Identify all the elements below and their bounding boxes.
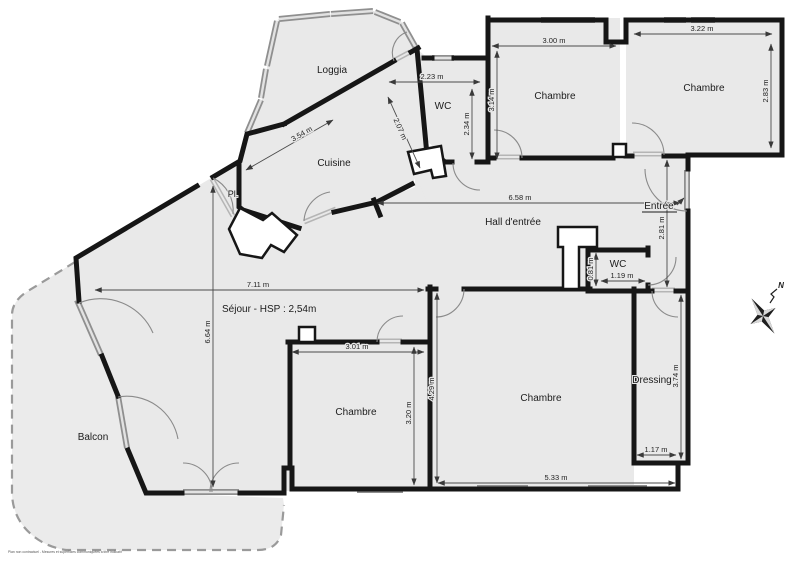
room-label-wc-hall: WC [610, 259, 627, 270]
floor-plan-page: 2.23 m 2.34 m 3.00 m 3.14 m 3.22 m 2.83 … [0, 0, 800, 566]
dim-chambre-tr-width: 3.22 m [691, 24, 714, 33]
room-label-placard: Pl. [228, 189, 239, 199]
room-label-dressing: Dressing [632, 375, 671, 386]
room-label-loggia: Loggia [317, 65, 347, 76]
room-label-sejour: Séjour - HSP : 2,54m [222, 304, 316, 315]
room-label-entree: Entrée [644, 201, 674, 212]
room-label-balcon: Balcon [78, 432, 109, 443]
dim-wc-top-height: 2.34 m [462, 113, 471, 136]
chambre-duct [613, 144, 626, 157]
dim-chambre-br-height: 4.29 m [427, 378, 436, 401]
dim-hall-length: 6.58 m [509, 193, 532, 202]
room-label-cuisine: Cuisine [317, 158, 351, 169]
north-arrow [770, 289, 777, 303]
dim-dressing-height: 3.74 m [671, 365, 680, 388]
room-label-chambre-top-middle: Chambre [534, 91, 576, 102]
floor-plan: 2.23 m 2.34 m 3.00 m 3.14 m 3.22 m 2.83 … [0, 0, 800, 566]
radiator-box [299, 327, 315, 342]
dim-chambre-bl-height: 3.20 m [404, 402, 413, 425]
north-label: N [778, 281, 784, 290]
dim-chambre-tr-height: 2.83 m [761, 80, 770, 103]
dim-sejour-height: 6.64 m [203, 321, 212, 344]
dim-wc-hall-height: 0.81 m [586, 258, 595, 281]
dim-chambre-bl-width: 3.01 m [346, 342, 369, 351]
fine-print: Plan non contractuel - Mesures et superf… [8, 550, 122, 554]
dim-chambre-tm-height: 3.14 m [487, 89, 496, 112]
room-label-chambre-top-right: Chambre [683, 83, 725, 94]
dim-chambre-br-width: 5.33 m [545, 473, 568, 482]
compass-icon: N [739, 281, 787, 342]
dim-wc-top-width: 2.23 m [421, 72, 444, 81]
dim-wc-hall-width: 1.19 m [611, 271, 634, 280]
dim-dressing-width: 1.17 m [645, 445, 668, 454]
room-label-hall: Hall d'entrée [485, 217, 541, 228]
dim-chambre-tm-width: 3.00 m [543, 36, 566, 45]
dim-entree-height: 2.81 m [657, 217, 666, 240]
dim-sejour-width: 7.11 m [247, 280, 269, 289]
room-label-chambre-bottom-right: Chambre [520, 393, 562, 404]
room-label-chambre-bottom-left: Chambre [335, 407, 377, 418]
room-label-wc-top: WC [435, 101, 452, 112]
